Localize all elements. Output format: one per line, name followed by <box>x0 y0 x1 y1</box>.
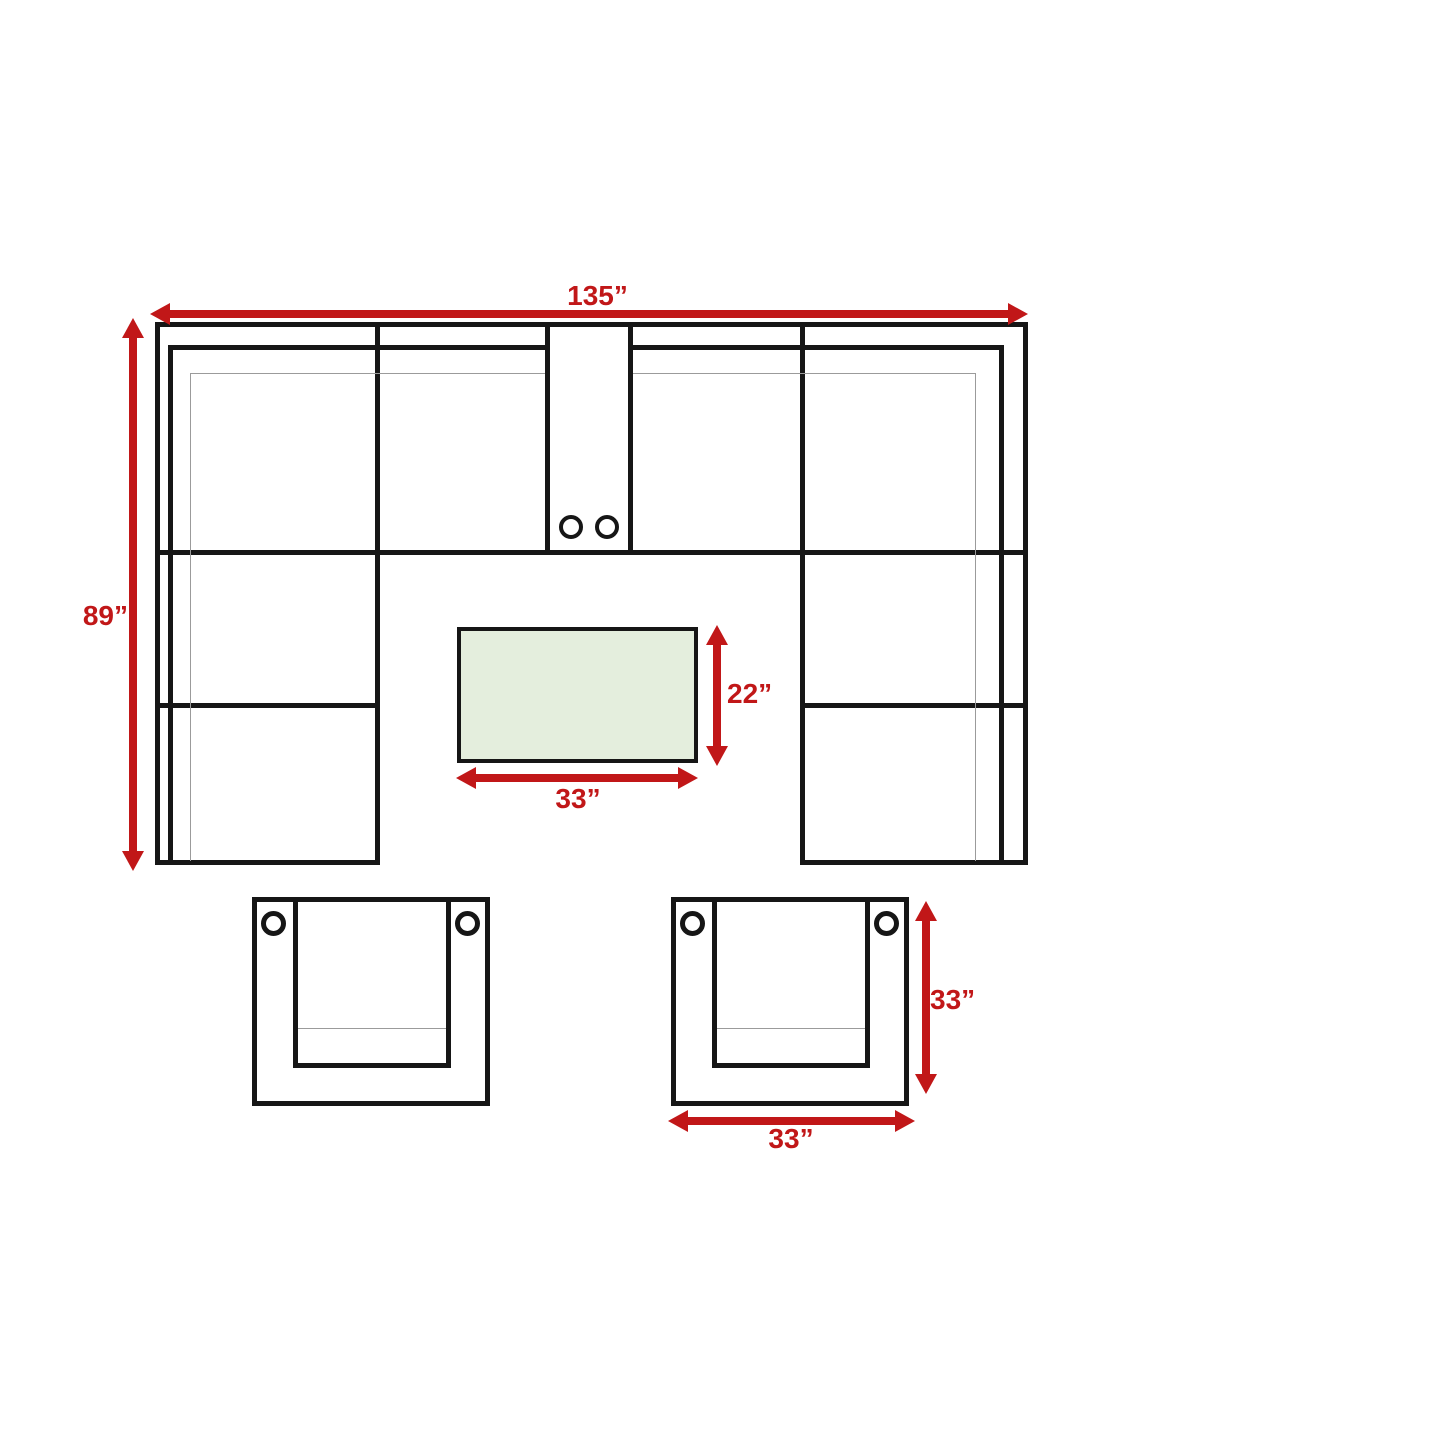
sectional-outer-top-edge <box>155 322 1028 327</box>
sectional-back-inner-edge-right <box>628 345 1004 350</box>
chair-cushion-line <box>717 1028 865 1029</box>
sectional-back-inner-edge-left <box>168 345 550 350</box>
cup-holder-icon <box>455 911 480 936</box>
sectional-left-column-bottom-edge <box>155 860 380 865</box>
arrowhead-down-icon <box>706 746 728 766</box>
cushion-line-top-left <box>190 373 545 374</box>
arrowhead-down-icon <box>915 1074 937 1094</box>
chair-depth-label: 33” <box>930 985 975 1015</box>
chair-width-label: 33” <box>763 1124 819 1154</box>
chair-right-arm-inner-edge <box>865 897 870 1068</box>
chair-outer-edge <box>671 897 909 1106</box>
dimension-arrow-shaft <box>129 336 137 853</box>
chair-seat-front-edge <box>712 1063 870 1068</box>
console-right-edge <box>628 322 633 555</box>
arrowhead-left-icon <box>668 1110 688 1132</box>
chair-seat-front-edge <box>293 1063 451 1068</box>
chair-outer-edge <box>252 897 490 1106</box>
cushion-line-right-column <box>975 373 976 861</box>
arrowhead-right-icon <box>678 767 698 789</box>
chair-left-arm-inner-edge <box>712 897 717 1068</box>
arrowhead-right-icon <box>1008 303 1028 325</box>
console-left-edge <box>545 322 550 555</box>
sectional-right-arm-inner-edge <box>999 345 1004 865</box>
arrowhead-right-icon <box>895 1110 915 1132</box>
dimension-arrow-shaft <box>922 919 930 1076</box>
dimension-arrow-shaft <box>170 310 1010 318</box>
sectional-outer-right-edge <box>1023 322 1028 865</box>
cup-holder-icon <box>559 515 583 539</box>
sectional-right-column-seat-divider <box>800 703 1028 708</box>
sectional-depth-label: 89” <box>68 601 128 631</box>
sectional-right-column-bottom-edge <box>800 860 1028 865</box>
table-depth-label: 22” <box>727 679 772 709</box>
sectional-width-label: 135” <box>560 281 635 311</box>
dimension-arrow-shaft <box>474 774 680 782</box>
cushion-line-top-right <box>633 373 975 374</box>
cup-holder-icon <box>874 911 899 936</box>
dimension-arrow-shaft <box>713 643 721 748</box>
chair-cushion-line <box>298 1028 446 1029</box>
table-width-label: 33” <box>550 784 606 814</box>
arrowhead-left-icon <box>150 303 170 325</box>
sectional-left-column-seat-divider <box>155 703 380 708</box>
arrowhead-up-icon <box>706 625 728 645</box>
arrowhead-up-icon <box>915 901 937 921</box>
cup-holder-icon <box>595 515 619 539</box>
arrowhead-left-icon <box>456 767 476 789</box>
cushion-line-left-column <box>190 373 191 861</box>
sectional-module-divider-right <box>800 322 805 865</box>
sectional-outer-left-edge <box>155 322 160 865</box>
cup-holder-icon <box>680 911 705 936</box>
arrowhead-up-icon <box>122 318 144 338</box>
sectional-seat-front-edge <box>155 550 1028 555</box>
arrowhead-down-icon <box>122 851 144 871</box>
coffee-table <box>457 627 698 763</box>
furniture-dimension-diagram: 135” 89” 22” 33” 33” 33” <box>0 0 1445 1445</box>
sectional-left-arm-inner-edge <box>168 345 173 865</box>
chair-left-arm-inner-edge <box>293 897 298 1068</box>
cup-holder-icon <box>261 911 286 936</box>
sectional-module-divider-left <box>375 322 380 865</box>
chair-right-arm-inner-edge <box>446 897 451 1068</box>
